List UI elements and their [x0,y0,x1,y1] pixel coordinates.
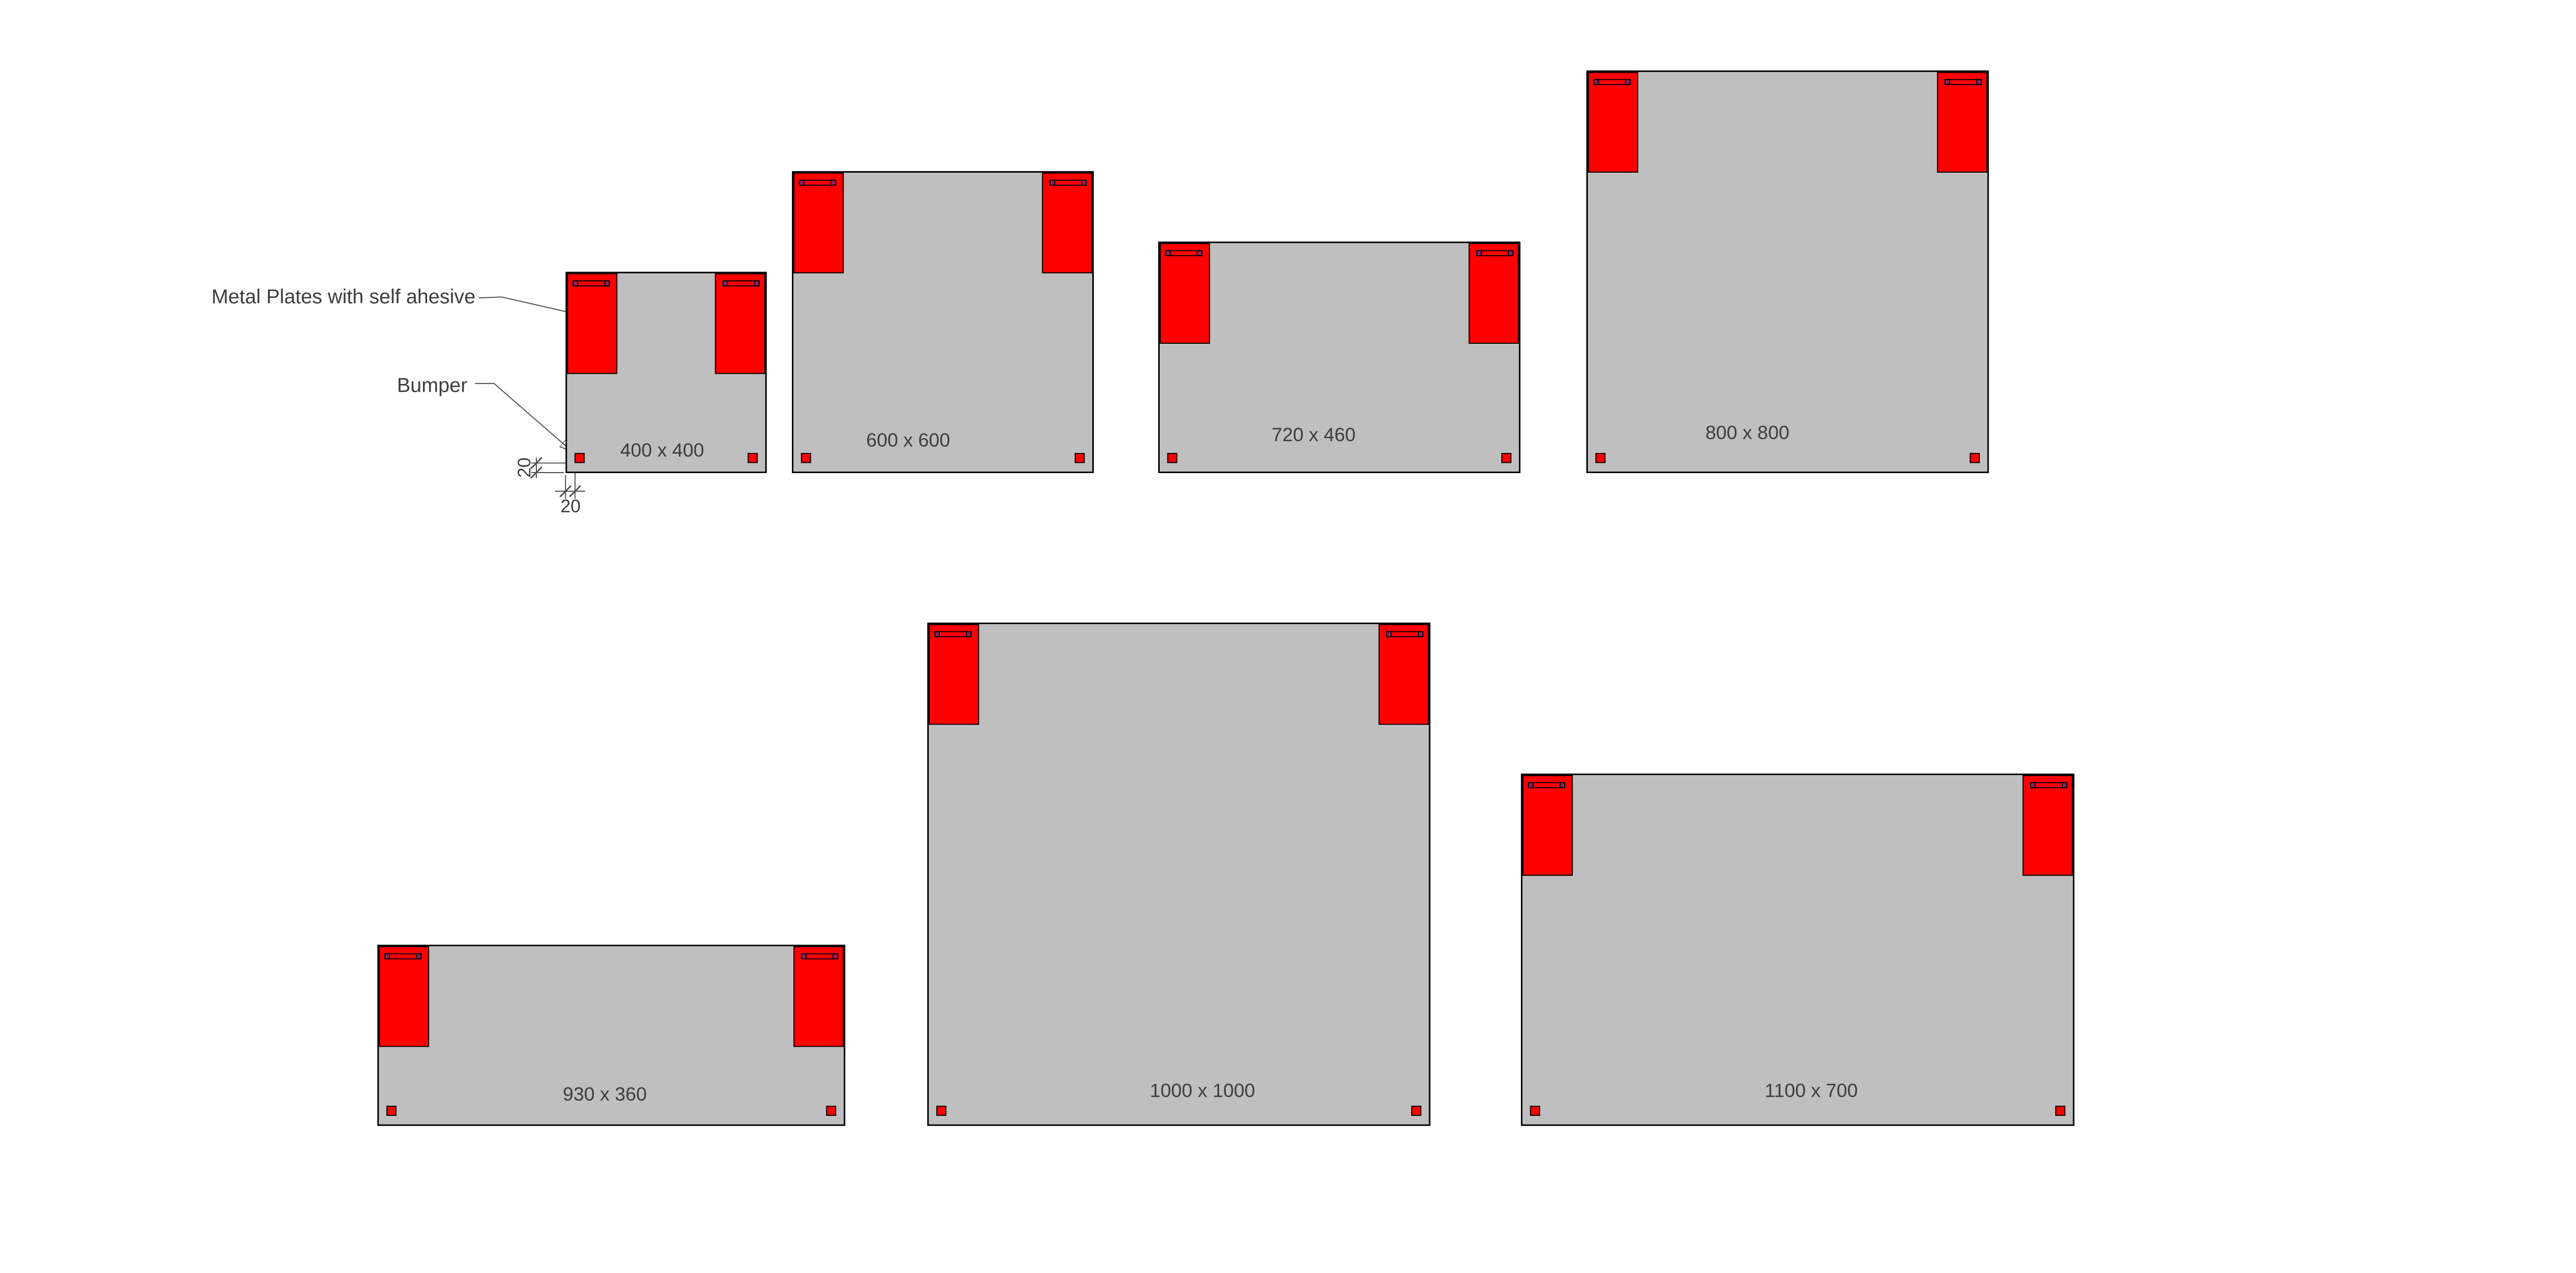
size-label: 1100 x 700 [1765,1080,1858,1102]
metal-plate-top-right [1469,243,1519,344]
bumper-bottom-right [1411,1106,1421,1116]
slot-pin-right [833,953,838,960]
metal-plate-top-right [715,273,766,374]
slot-pin-right [1508,250,1514,256]
slot-pin-right [1081,180,1087,186]
size-label: 400 x 400 [620,440,704,462]
plate-slot [1476,250,1513,256]
bumper-bottom-left [1596,453,1606,463]
slot-pin-right [754,280,760,287]
drawing-canvas: Metal Plates with self ahesive Bumper 20… [0,0,2576,1243]
slot-pin-left [722,280,728,287]
metal-plate-top-left [793,173,844,273]
metal-plate-top-left [379,946,429,1047]
slot-pin-right [1625,79,1631,85]
dimension-20-horizontal: 20 [561,496,581,517]
slot-pin-right [416,953,422,960]
panel-930x360: 930 x 360 [377,945,845,1126]
plate-slot [384,953,421,960]
plate-slot [1049,180,1087,186]
slot-pin-left [1165,250,1171,256]
slot-pin-left [2030,782,2036,789]
metal-plates-annotation: Metal Plates with self ahesive [211,286,475,308]
slot-pin-right [604,280,610,287]
slot-pin-right [1197,250,1202,256]
metal-plate-top-left [929,624,979,725]
panel-720x460: 720 x 460 [1158,242,1520,473]
slot-pin-right [1560,782,1565,789]
plate-slot [801,953,838,960]
slot-pin-left [934,631,940,638]
plate-slot [1165,250,1202,256]
plate-slot [934,631,971,638]
plate-slot [1386,631,1423,638]
size-label: 1000 x 1000 [1150,1080,1255,1102]
slot-pin-right [1976,79,1982,85]
plate-slot [1594,79,1631,85]
metal-plate-top-right [1042,173,1092,273]
slot-pin-left [1594,79,1599,85]
bumper-bottom-left [574,453,585,463]
slot-pin-left [384,953,390,960]
panel-400x400: 400 x 400 [566,272,767,473]
size-label: 930 x 360 [563,1084,647,1105]
metal-plate-top-right [2023,775,2073,876]
metal-plate-top-left [1588,72,1638,173]
bumper-bottom-left [386,1106,397,1116]
plate-slot [722,280,759,287]
size-label: 800 x 800 [1705,423,1789,444]
bumper-bottom-left [1167,453,1178,463]
bumper-leader-line [475,383,572,451]
metal-plate-top-left [567,273,618,374]
slot-pin-right [1418,631,1423,638]
bumper-bottom-right [1970,453,1980,463]
metal-plate-top-left [1522,775,1573,876]
slot-pin-left [1386,631,1392,638]
plate-slot [1944,79,1981,85]
metal-plate-top-right [793,946,844,1047]
plate-slot [572,280,609,287]
panel-800x800: 800 x 800 [1586,71,1989,473]
slot-pin-right [966,631,972,638]
bumper-bottom-left [801,453,811,463]
slot-pin-right [831,180,836,186]
metal-plate-top-right [1379,624,1429,725]
bumper-bottom-right [826,1106,837,1116]
panel-600x600: 600 x 600 [792,171,1094,473]
slot-pin-left [572,280,578,287]
slot-pin-left [1476,250,1482,256]
slot-pin-left [799,180,805,186]
slot-pin-left [1528,782,1534,789]
metal-plate-top-left [1160,243,1210,344]
bumper-bottom-right [748,453,758,463]
panel-1100x700: 1100 x 700 [1521,774,2074,1126]
plate-slot [1528,782,1565,789]
slot-pin-right [2062,782,2067,789]
panel-1000x1000: 1000 x 1000 [927,623,1431,1126]
plate-slot [2030,782,2067,789]
bumper-bottom-right [1501,453,1512,463]
bumper-bottom-left [1530,1106,1540,1116]
bumper-annotation: Bumper [397,374,467,397]
bumper-bottom-right [2055,1106,2065,1116]
size-label: 720 x 460 [1272,425,1355,446]
plate-slot [799,180,836,186]
metal-plate-top-right [1937,72,1988,173]
bumper-bottom-right [1075,453,1085,463]
slot-pin-left [1944,79,1950,85]
metal-plates-leader-line [479,297,579,314]
slot-pin-left [801,953,807,960]
bumper-bottom-left [936,1106,946,1116]
slot-pin-left [1049,180,1055,186]
dimension-20-vertical: 20 [514,458,535,478]
size-label: 600 x 600 [866,430,950,451]
